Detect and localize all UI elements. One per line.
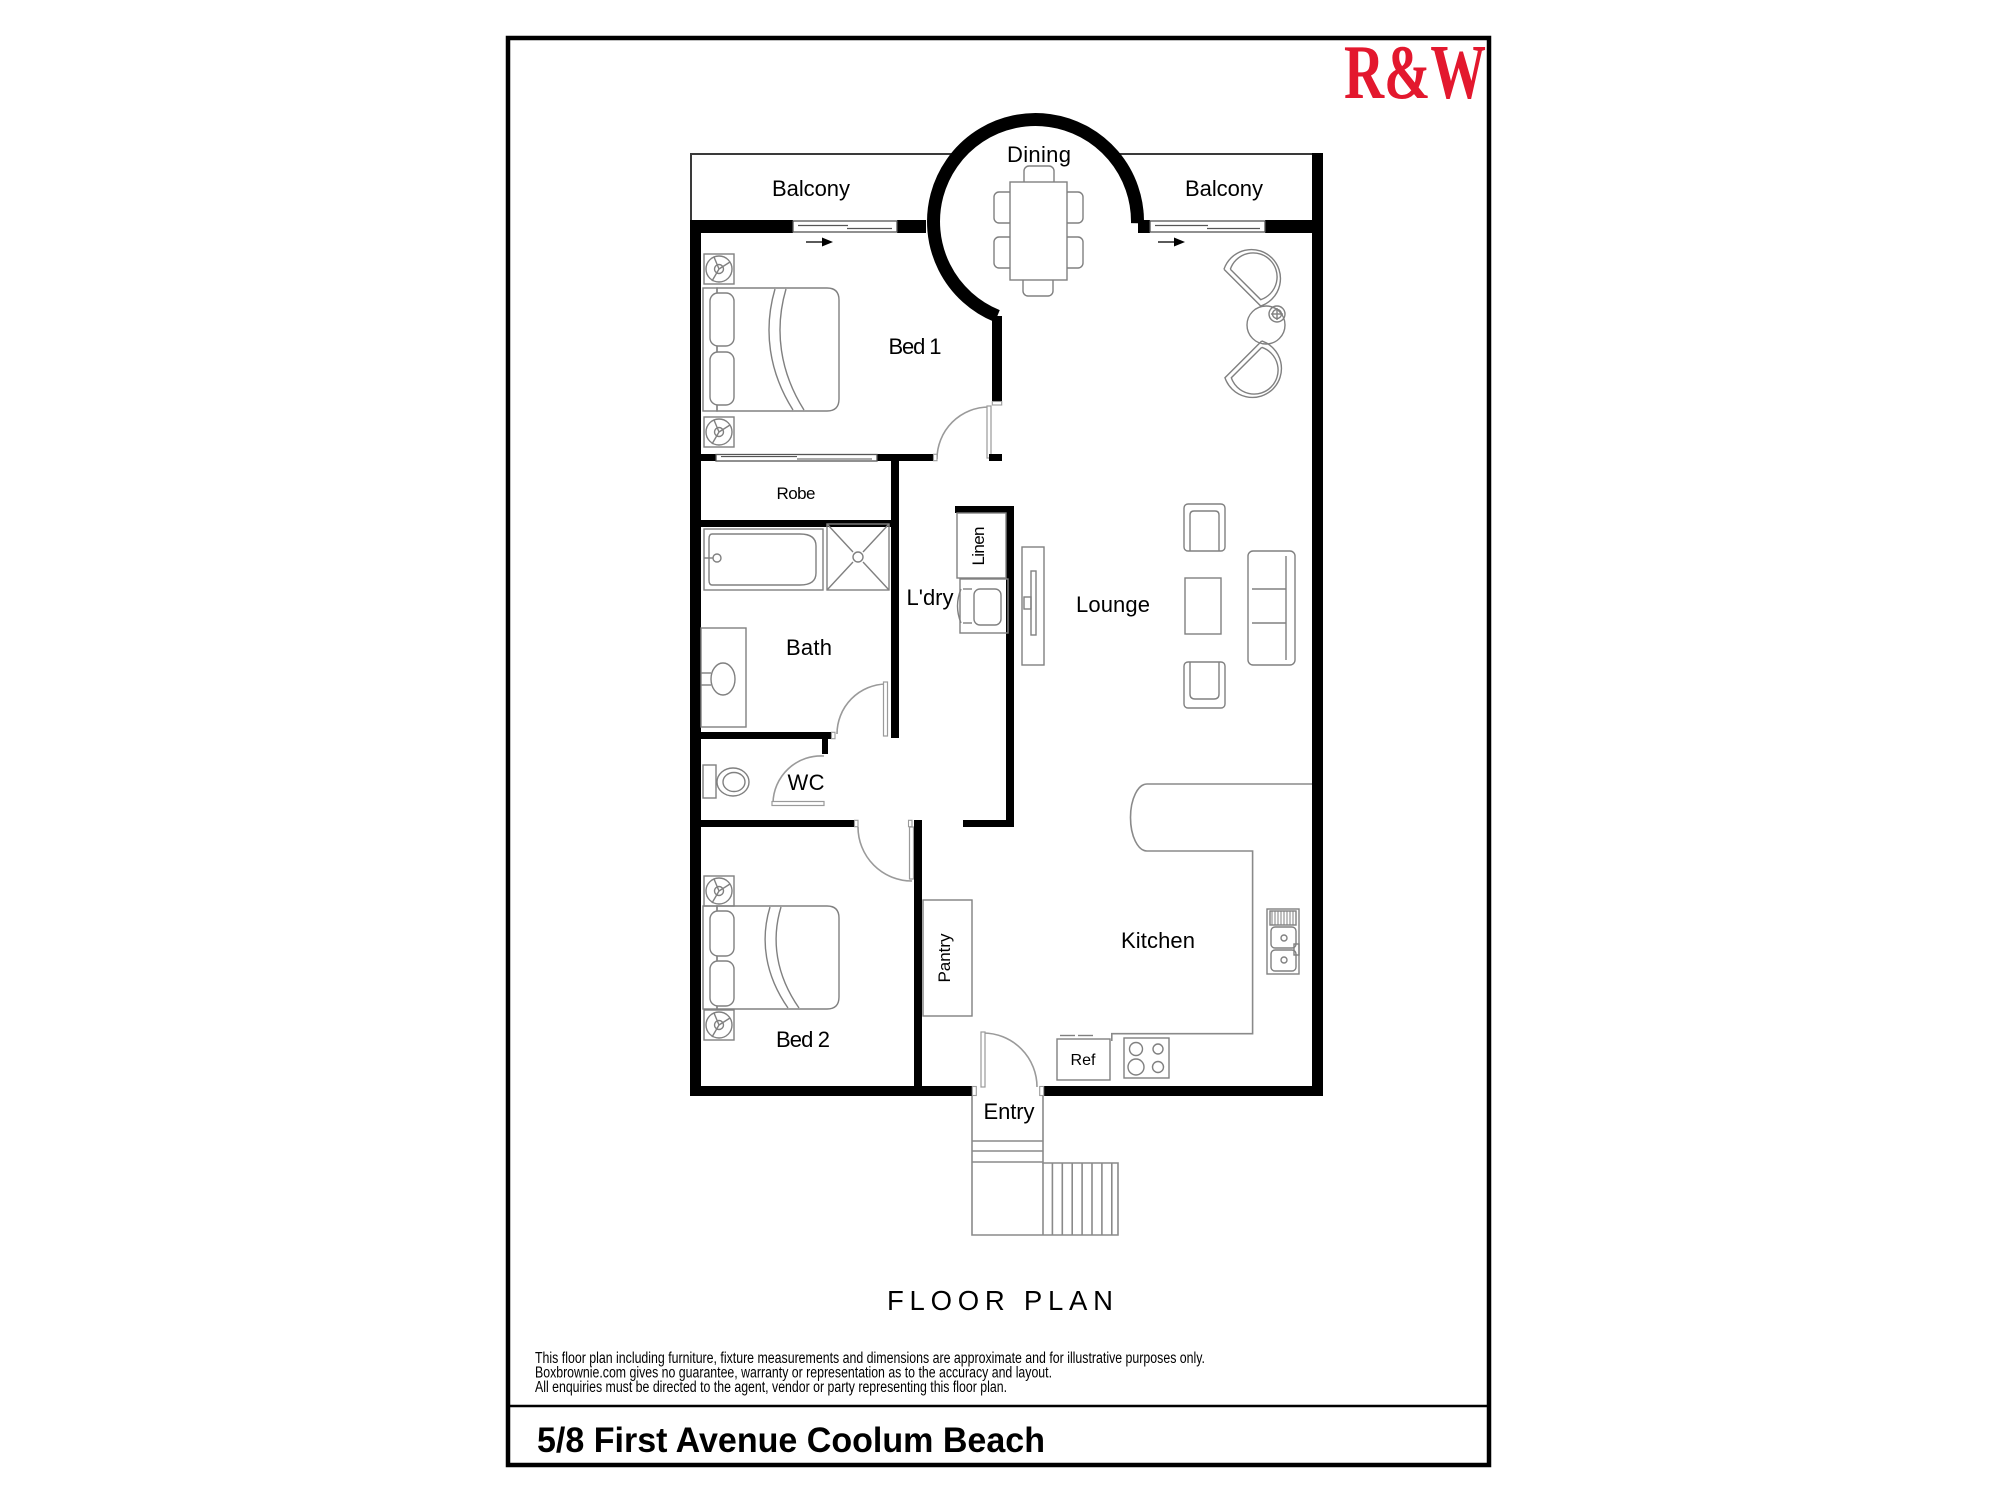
svg-text:Pantry: Pantry — [935, 933, 954, 983]
svg-text:Kitchen: Kitchen — [1121, 928, 1195, 953]
svg-text:L'dry: L'dry — [907, 585, 954, 610]
svg-text:Lounge: Lounge — [1076, 592, 1150, 617]
svg-text:R&W: R&W — [1344, 29, 1486, 115]
svg-text:WC: WC — [788, 770, 825, 795]
svg-text:Bed 2: Bed 2 — [776, 1027, 830, 1052]
svg-text:Ref: Ref — [1071, 1052, 1097, 1069]
svg-text:FLOOR PLAN: FLOOR PLAN — [887, 1285, 1119, 1316]
svg-text:Linen: Linen — [969, 527, 988, 566]
svg-text:5/8 First Avenue Coolum Beach: 5/8 First Avenue Coolum Beach — [537, 1420, 1045, 1460]
svg-text:Dining: Dining — [1007, 142, 1071, 167]
svg-text:Bed 1: Bed 1 — [889, 334, 942, 359]
svg-text:Balcony: Balcony — [772, 176, 850, 201]
svg-text:Bath: Bath — [786, 635, 832, 660]
svg-text:Robe: Robe — [777, 484, 816, 503]
svg-text:Entry: Entry — [984, 1099, 1035, 1124]
svg-text:All enquiries must be directed: All enquiries must be directed to the ag… — [535, 1379, 1007, 1396]
svg-text:Balcony: Balcony — [1185, 176, 1263, 201]
